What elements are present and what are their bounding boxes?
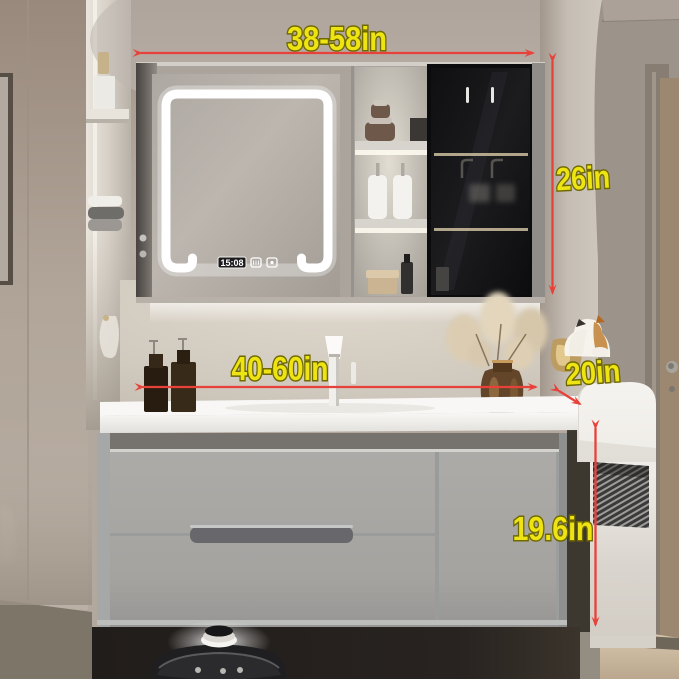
svg-text:40-60in: 40-60in — [232, 350, 329, 387]
svg-text:38-58in: 38-58in — [287, 20, 387, 57]
svg-text:26in: 26in — [555, 159, 611, 198]
svg-text:20in: 20in — [564, 353, 621, 392]
svg-text:19.6in: 19.6in — [513, 510, 594, 547]
svg-text:15:08: 15:08 — [220, 258, 243, 268]
